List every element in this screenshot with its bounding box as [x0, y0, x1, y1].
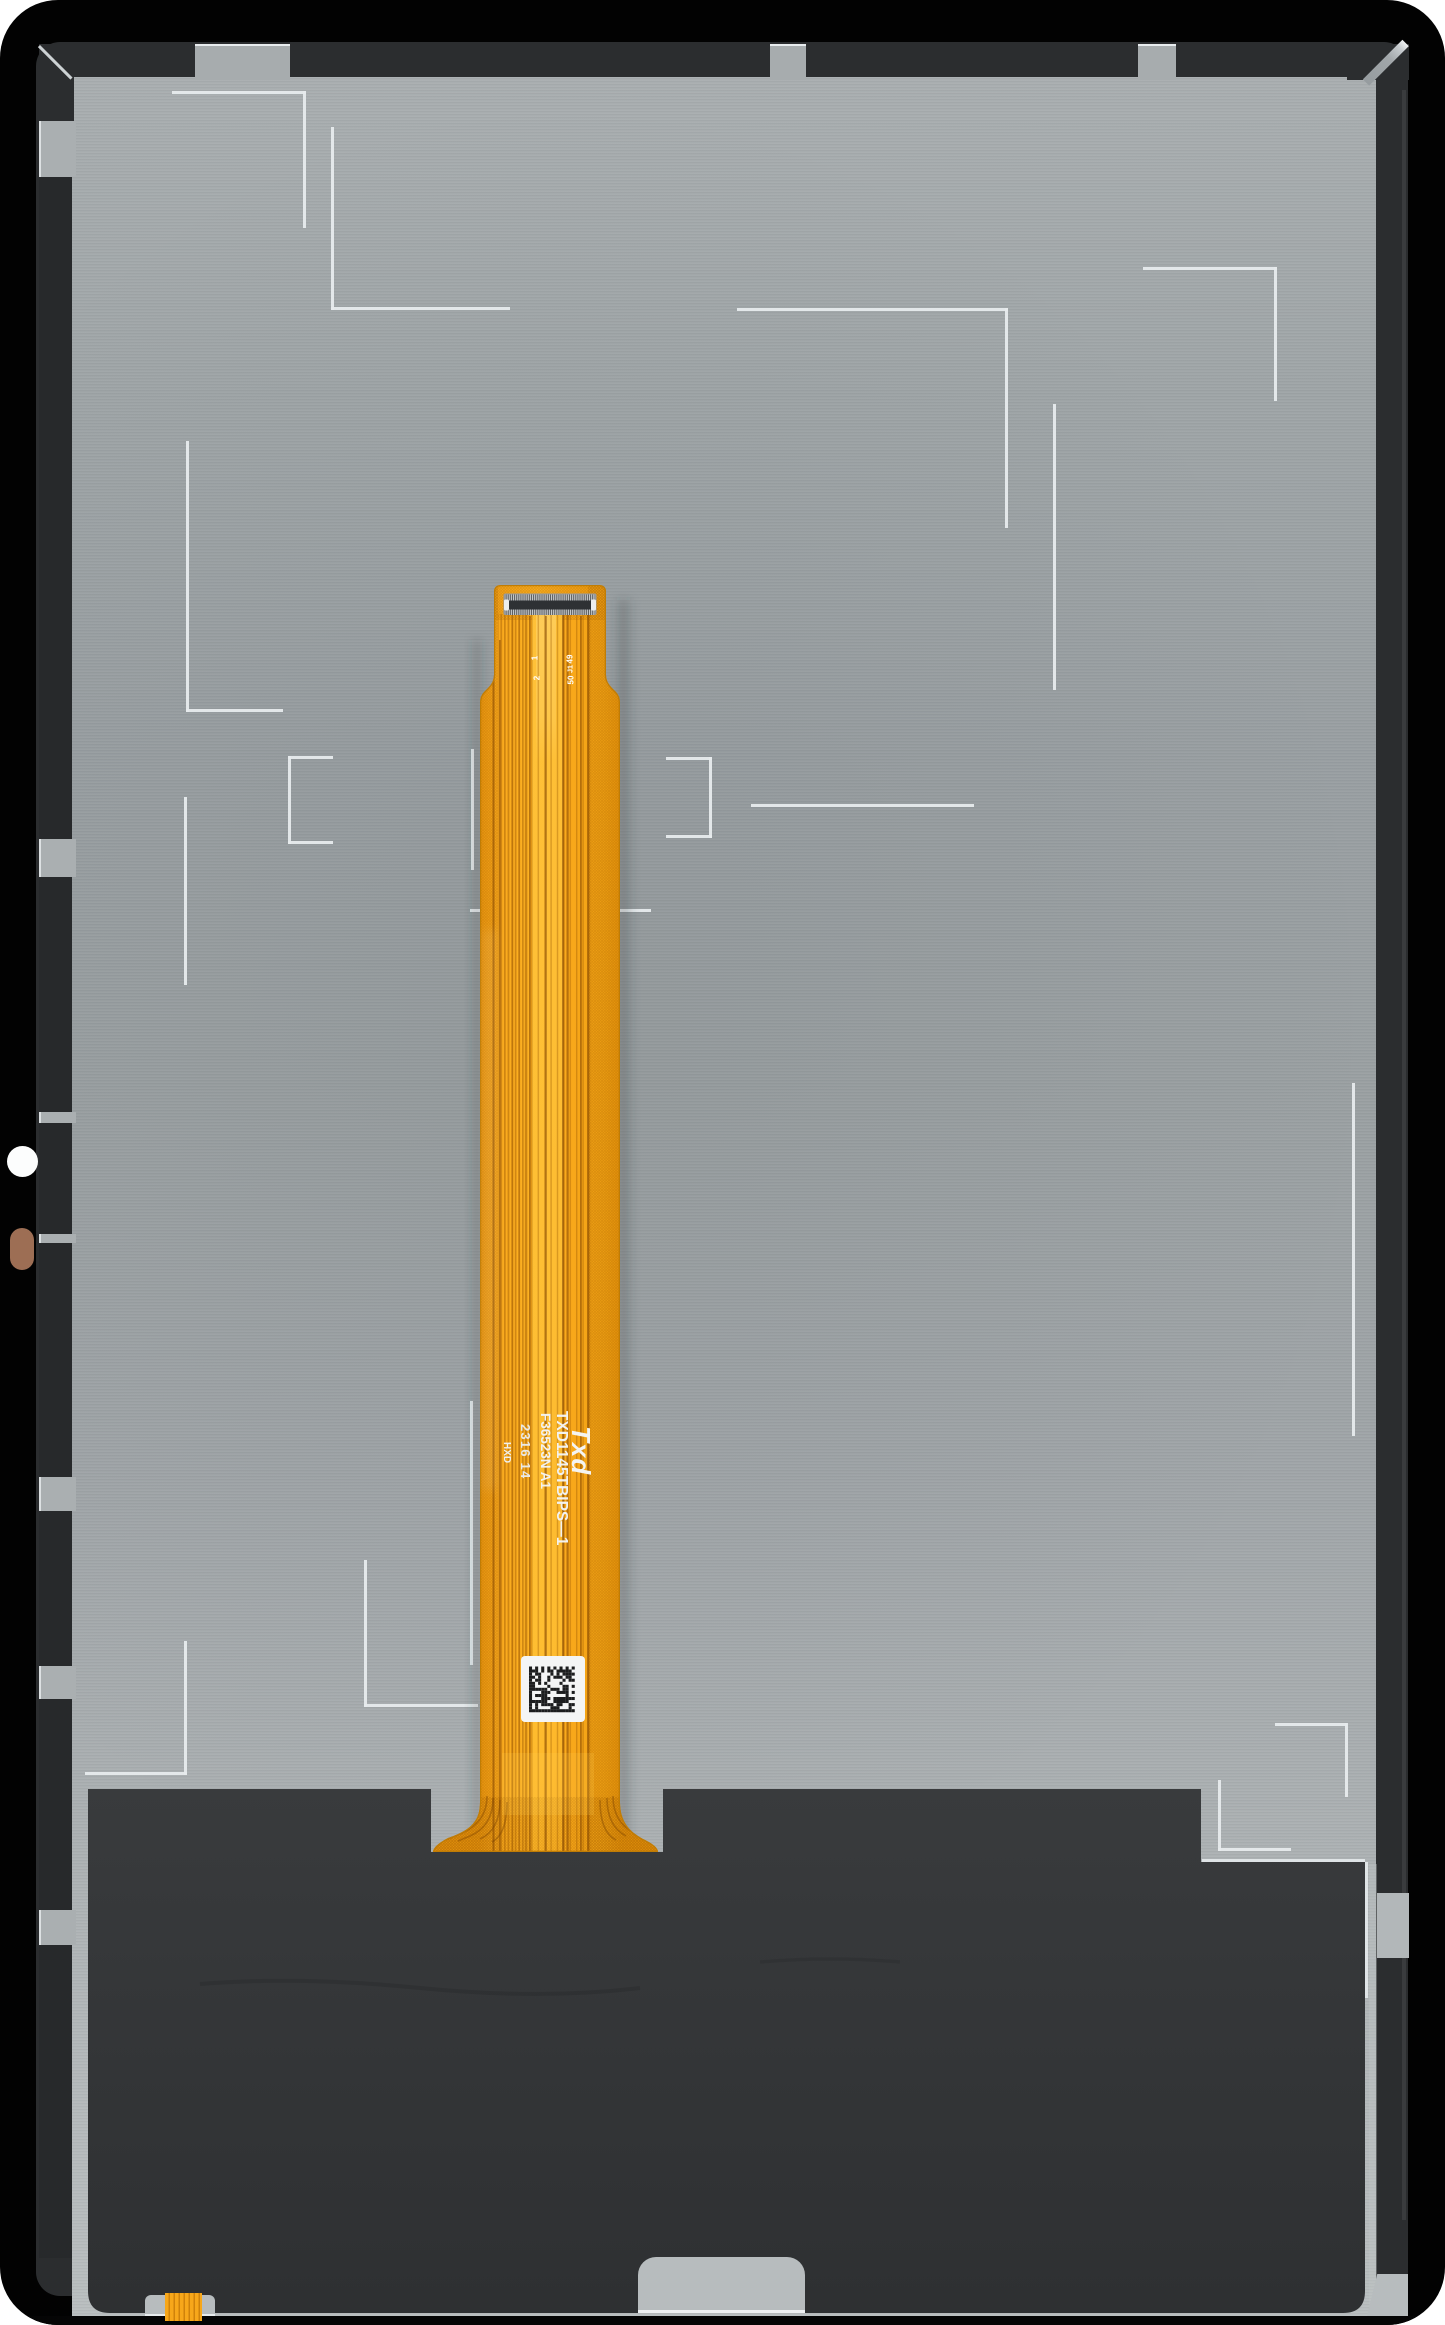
svg-text:50: 50	[567, 675, 576, 684]
svg-text:2316 14: 2316 14	[518, 1424, 533, 1479]
svg-text:2: 2	[533, 675, 542, 680]
svg-text:1: 1	[531, 655, 540, 660]
svg-text:49: 49	[566, 654, 575, 663]
svg-text:TXD1145TBIPS—1: TXD1145TBIPS—1	[553, 1411, 570, 1546]
svg-text:J1: J1	[568, 665, 575, 673]
svg-text:HXD: HXD	[501, 1442, 512, 1463]
svg-text:F36523N A1: F36523N A1	[538, 1413, 553, 1490]
